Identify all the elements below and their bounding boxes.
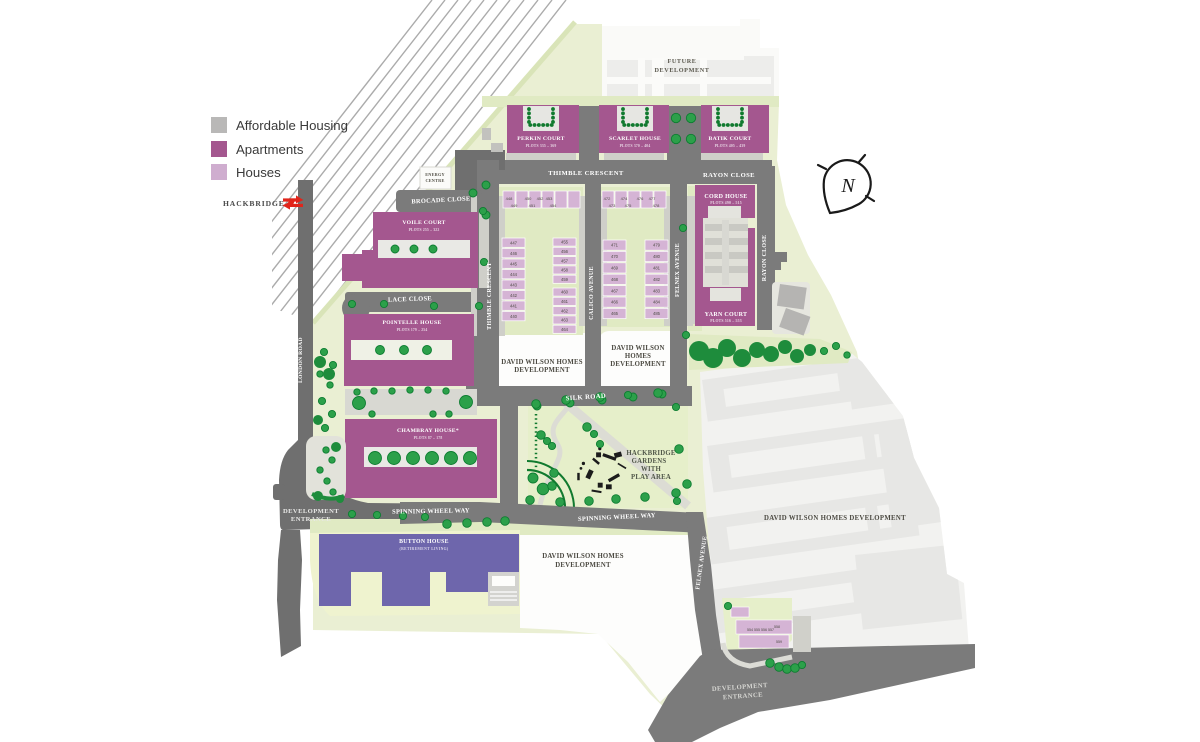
svg-text:POINTELLE HOUSE: POINTELLE HOUSE: [382, 320, 441, 326]
svg-text:CORD HOUSE: CORD HOUSE: [704, 194, 747, 200]
svg-text:DAVID WILSON HOMES DEVELOPMENT: DAVID WILSON HOMES DEVELOPMENT: [764, 515, 906, 522]
svg-text:SPINNING WHEEL WAY: SPINNING WHEEL WAY: [392, 507, 470, 515]
svg-text:VOILE COURT: VOILE COURT: [402, 220, 445, 226]
svg-text:450: 450: [525, 196, 532, 201]
svg-text:PLOTS 87 – 178: PLOTS 87 – 178: [414, 436, 443, 440]
svg-text:483: 483: [653, 288, 661, 293]
svg-text:481: 481: [653, 266, 661, 271]
svg-text:478: 478: [653, 203, 660, 208]
svg-text:472: 472: [604, 196, 611, 201]
svg-text:457: 457: [561, 258, 569, 263]
svg-text:LONDON ROAD: LONDON ROAD: [298, 337, 304, 383]
svg-text:466: 466: [611, 300, 619, 305]
svg-text:PLAY AREA: PLAY AREA: [631, 474, 671, 481]
svg-text:442: 442: [510, 293, 518, 298]
svg-text:444: 444: [510, 272, 518, 277]
svg-text:473: 473: [609, 203, 616, 208]
svg-text:447: 447: [510, 240, 518, 245]
svg-text:470: 470: [611, 254, 619, 259]
svg-text:482: 482: [653, 277, 661, 282]
svg-text:459: 459: [561, 277, 569, 282]
svg-text:440: 440: [510, 314, 518, 319]
svg-text:ENTRANCE: ENTRANCE: [291, 516, 331, 523]
svg-text:ENERGY: ENERGY: [425, 172, 445, 177]
svg-text:468: 468: [611, 277, 619, 282]
svg-text:DEVELOPMENT: DEVELOPMENT: [654, 67, 709, 74]
svg-text:THIMBLE CRESCENT: THIMBLE CRESCENT: [487, 262, 493, 330]
svg-text:Affordable Housing: Affordable Housing: [236, 118, 348, 133]
svg-text:CHAMBRAY HOUSE*: CHAMBRAY HOUSE*: [397, 428, 459, 434]
svg-text:475: 475: [625, 203, 632, 208]
svg-text:452: 452: [537, 196, 544, 201]
svg-text:484: 484: [653, 300, 661, 305]
svg-text:558: 558: [774, 625, 780, 629]
svg-text:WITH: WITH: [641, 466, 662, 473]
svg-text:(RETIREMENT LIVING): (RETIREMENT LIVING): [400, 547, 449, 551]
svg-text:DAVID WILSON: DAVID WILSON: [611, 345, 664, 352]
svg-text:HOMES: HOMES: [625, 353, 651, 360]
svg-text:N: N: [840, 175, 856, 197]
svg-text:460: 460: [561, 290, 569, 295]
svg-text:HACKBRIDGE: HACKBRIDGE: [223, 199, 285, 208]
svg-text:CALICO AVENUE: CALICO AVENUE: [589, 266, 595, 320]
svg-text:469: 469: [611, 266, 619, 271]
svg-text:455: 455: [561, 240, 569, 245]
svg-text:474: 474: [621, 196, 628, 201]
svg-text:PERKIN COURT: PERKIN COURT: [517, 136, 564, 142]
svg-text:445: 445: [510, 261, 518, 266]
svg-text:PLOTS 405 – 439: PLOTS 405 – 439: [715, 144, 746, 148]
svg-text:446: 446: [510, 251, 518, 256]
svg-text:RAYON CLOSE: RAYON CLOSE: [762, 235, 768, 282]
svg-text:YARN COURT: YARN COURT: [705, 312, 748, 318]
svg-text:DAVID WILSON HOMES: DAVID WILSON HOMES: [542, 553, 624, 560]
svg-text:PLOTS 179 – 254: PLOTS 179 – 254: [397, 328, 428, 332]
svg-text:479: 479: [653, 243, 661, 248]
svg-text:554 555 556 557: 554 555 556 557: [747, 628, 774, 632]
svg-text:467: 467: [611, 288, 619, 293]
svg-text:451: 451: [529, 203, 536, 208]
svg-text:FUTURE: FUTURE: [667, 58, 696, 65]
svg-text:471: 471: [611, 243, 619, 248]
svg-text:485: 485: [653, 311, 661, 316]
svg-text:SCARLET HOUSE: SCARLET HOUSE: [609, 136, 661, 142]
svg-text:FELNEX AVENUE: FELNEX AVENUE: [675, 243, 681, 297]
svg-text:PLOTS 255 – 322: PLOTS 255 – 322: [409, 228, 440, 232]
svg-text:PLOTS 516 – 553: PLOTS 516 – 553: [710, 319, 742, 323]
svg-text:448: 448: [506, 196, 513, 201]
svg-text:456: 456: [561, 249, 569, 254]
svg-text:465: 465: [611, 311, 619, 316]
svg-text:464: 464: [561, 327, 569, 332]
svg-text:476: 476: [637, 196, 644, 201]
svg-text:DEVELOPMENT: DEVELOPMENT: [283, 508, 339, 515]
svg-text:458: 458: [561, 268, 569, 273]
svg-text:DEVELOPMENT: DEVELOPMENT: [555, 562, 611, 569]
svg-text:CENTRE: CENTRE: [425, 178, 444, 183]
svg-text:480: 480: [653, 254, 661, 259]
svg-text:Houses: Houses: [236, 165, 281, 180]
svg-text:Apartments: Apartments: [236, 142, 304, 157]
svg-text:PLOTS 370 – 404: PLOTS 370 – 404: [620, 144, 651, 148]
svg-text:HACKBRIDGE: HACKBRIDGE: [626, 450, 675, 457]
svg-text:463: 463: [561, 318, 569, 323]
svg-text:DAVID WILSON HOMES: DAVID WILSON HOMES: [501, 359, 583, 366]
svg-text:GARDENS: GARDENS: [632, 458, 667, 465]
svg-text:DEVELOPMENT: DEVELOPMENT: [514, 367, 570, 374]
svg-text:BATIK COURT: BATIK COURT: [709, 136, 752, 142]
svg-text:BUTTON HOUSE: BUTTON HOUSE: [399, 539, 449, 545]
svg-text:462: 462: [561, 308, 569, 313]
svg-text:454: 454: [550, 203, 557, 208]
svg-text:461: 461: [561, 299, 569, 304]
svg-text:453: 453: [546, 196, 553, 201]
svg-text:449: 449: [511, 203, 518, 208]
svg-text:RAYON CLOSE: RAYON CLOSE: [703, 172, 755, 179]
svg-text:443: 443: [510, 282, 518, 287]
svg-text:559: 559: [776, 640, 782, 644]
svg-text:441: 441: [510, 303, 518, 308]
svg-text:PLOTS 335 – 369: PLOTS 335 – 369: [526, 144, 557, 148]
svg-text:DEVELOPMENT: DEVELOPMENT: [610, 361, 666, 368]
svg-text:THIMBLE CRESCENT: THIMBLE CRESCENT: [548, 170, 624, 177]
svg-text:PLOTS 490 – 515: PLOTS 490 – 515: [710, 201, 742, 205]
svg-text:477: 477: [649, 196, 656, 201]
